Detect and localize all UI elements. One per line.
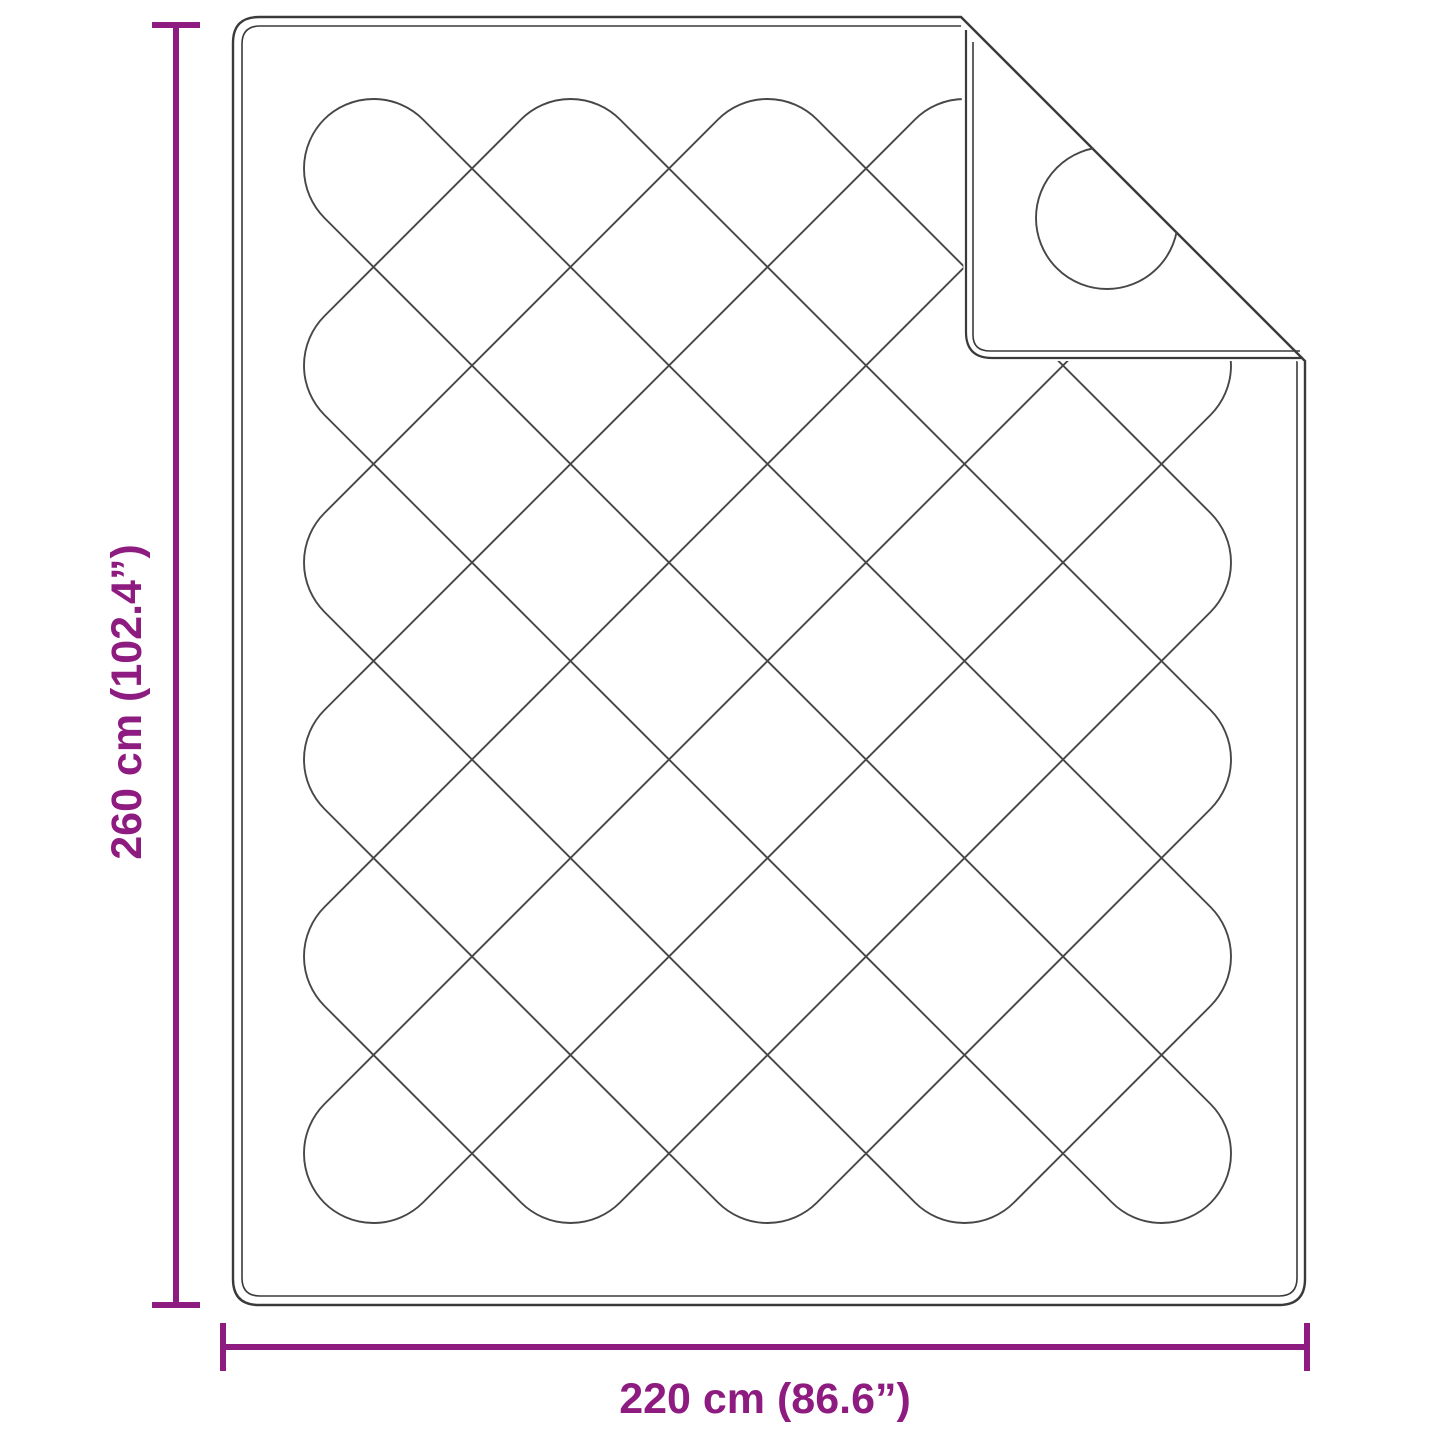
width-label: 220 cm (86.6”) <box>619 1375 911 1423</box>
horizontal-dimension-right-cap <box>1304 1323 1310 1371</box>
product-dimension-diagram: 260 cm (102.4”) 220 cm (86.6”) <box>0 0 1445 1445</box>
vertical-dimension: 260 cm (102.4”) <box>103 22 200 1308</box>
vertical-dimension-bottom-cap <box>152 1302 200 1308</box>
horizontal-dimension-left-cap <box>220 1323 226 1371</box>
horizontal-dimension: 220 cm (86.6”) <box>220 1323 1310 1423</box>
height-label: 260 cm (102.4”) <box>103 544 151 860</box>
horizontal-dimension-line <box>223 1344 1307 1350</box>
vertical-dimension-line <box>173 25 179 1305</box>
diagram-canvas: 260 cm (102.4”) 220 cm (86.6”) <box>0 0 1445 1445</box>
vertical-dimension-top-cap <box>152 22 200 28</box>
